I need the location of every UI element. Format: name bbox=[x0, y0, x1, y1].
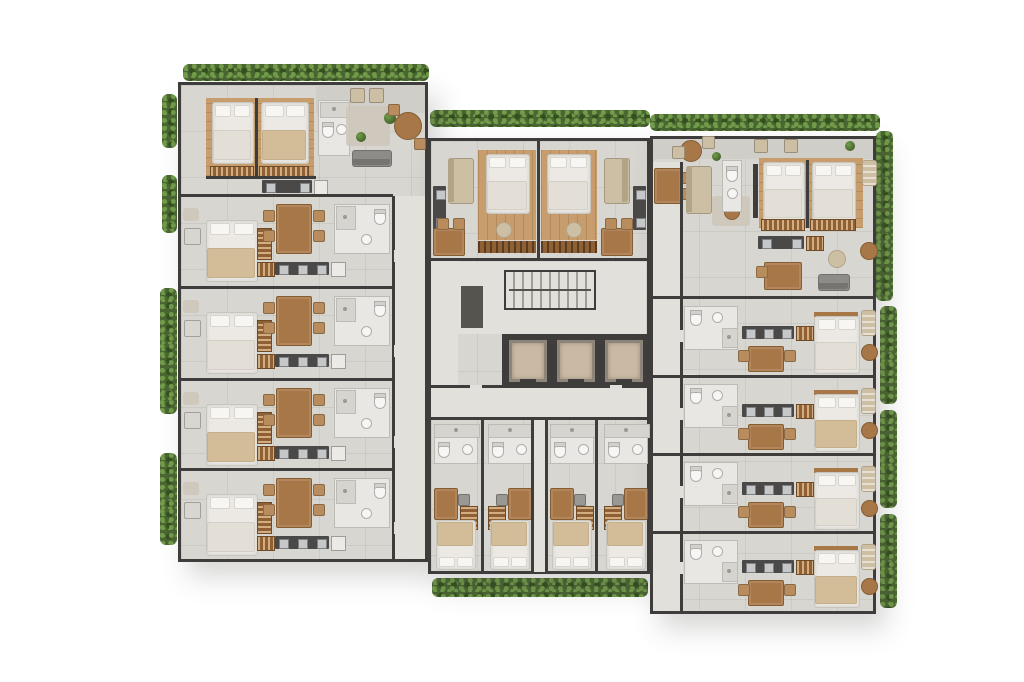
door-opening bbox=[394, 522, 397, 534]
apartment-d-sofa bbox=[686, 166, 712, 214]
studio-e4-kitchen-counter bbox=[742, 560, 794, 573]
micro-c1-shower-drain bbox=[454, 428, 458, 432]
studio-a1-bed-blanket bbox=[207, 248, 255, 278]
studio-e1-sink bbox=[712, 312, 723, 323]
studio-a3-shower-drain bbox=[343, 399, 347, 403]
studio-a2-chair-4 bbox=[313, 322, 325, 334]
apartment-a-bed-2 bbox=[261, 102, 309, 164]
studio-e2-kitchen-counter-appliance-2 bbox=[782, 407, 792, 417]
door-opening bbox=[394, 345, 397, 357]
apartment-d-coffee-table bbox=[724, 204, 740, 220]
micro-c3-toilet bbox=[554, 446, 566, 458]
studio-a3-bed-blanket bbox=[207, 432, 255, 462]
studio-e1-shower-drain bbox=[727, 335, 731, 339]
studio-a4-fridge bbox=[331, 536, 346, 551]
elevator-cabin-3 bbox=[605, 340, 643, 382]
studio-e3-kitchen-counter-appliance-1 bbox=[764, 485, 774, 495]
studio-a1-kitchen-counter-appliance-2 bbox=[317, 265, 327, 275]
studio-a3-kitchen-rack bbox=[257, 446, 275, 461]
studio-a3-kitchen-counter-appliance-2 bbox=[317, 449, 327, 459]
studio-e1-bed-pillow-2 bbox=[838, 319, 856, 330]
micro-c1-sink bbox=[462, 444, 473, 455]
apartment-a-terrace-chair-1 bbox=[350, 88, 365, 103]
studio-e3-shower bbox=[722, 484, 738, 504]
elevator-cabin-1 bbox=[509, 340, 547, 382]
apartment-d-bench-back bbox=[818, 283, 848, 289]
micro-c3-shower-drain bbox=[570, 428, 574, 432]
micro-c3-desk bbox=[550, 488, 574, 520]
door-opening bbox=[562, 417, 576, 420]
studio-e4-kitchen-counter-appliance-1 bbox=[764, 563, 774, 573]
studio-a1-chair-1 bbox=[263, 210, 275, 222]
studio-a4-kitchen-rack bbox=[257, 536, 275, 551]
studio-a1-kitchen-rack bbox=[257, 262, 275, 277]
studio-e4-bed-pillow-1 bbox=[818, 553, 836, 564]
micro-c4-shower bbox=[604, 424, 650, 438]
hedge-right-a bbox=[876, 131, 893, 301]
apartment-a-kitchen-counter bbox=[262, 180, 312, 193]
micro-c1-desk bbox=[434, 488, 458, 520]
apartment-d-closet-2 bbox=[810, 219, 856, 231]
studio-a2-kitchen-counter-appliance-0 bbox=[279, 357, 289, 367]
hedge-right-d bbox=[880, 514, 897, 608]
hedge-left-b bbox=[162, 175, 177, 233]
door-opening bbox=[684, 530, 696, 533]
apartment-d-terrace-chair-4 bbox=[784, 139, 798, 153]
apartment-d-balcony-table bbox=[860, 242, 878, 260]
unit-b1-table bbox=[433, 228, 465, 256]
studio-a1-chair-3 bbox=[313, 210, 325, 222]
elevator-door-2 bbox=[568, 379, 584, 384]
studio-a3-bathroom bbox=[334, 388, 390, 438]
unit-b2-stool bbox=[566, 222, 582, 238]
studio-a3-shower bbox=[336, 390, 356, 414]
unit-b2-bed-pillow-2 bbox=[570, 157, 587, 168]
micro-c2-bed bbox=[490, 520, 530, 570]
studio-a4-chair-2 bbox=[263, 504, 275, 516]
apartment-a-shower bbox=[320, 102, 350, 118]
unit-b2-chair-2 bbox=[621, 218, 633, 230]
studio-e3-headboard bbox=[814, 468, 858, 473]
studio-a2-bed bbox=[206, 312, 258, 374]
micro-c1-bed-pillow-2 bbox=[457, 557, 473, 567]
studio-a1-toilet bbox=[374, 213, 386, 225]
apartment-a-bed-2-blanket bbox=[262, 130, 306, 160]
hedge-right-c bbox=[880, 410, 897, 508]
studio-a3-chair-3 bbox=[313, 394, 325, 406]
hedge-left-d bbox=[160, 453, 177, 545]
wall-micro-3 bbox=[545, 420, 548, 572]
studio-a4-shower-drain bbox=[343, 489, 347, 493]
micro-c3-bed-blanket bbox=[553, 522, 589, 546]
micro-c2-bathroom bbox=[488, 424, 532, 464]
studio-a4-chair-3 bbox=[313, 484, 325, 496]
studio-a3-closet bbox=[257, 412, 272, 444]
studio-e1-chair-2 bbox=[784, 350, 796, 362]
apartment-d-terrace-table bbox=[680, 140, 702, 162]
micro-c1-wardrobe bbox=[460, 506, 478, 530]
unit-b1-bed-pillow-2 bbox=[509, 157, 526, 168]
micro-c2-shower-drain bbox=[508, 428, 512, 432]
studio-a2-bathroom bbox=[334, 296, 390, 346]
studio-e1-bed-blanket bbox=[815, 342, 857, 370]
studio-e4-kitchen-counter-appliance-0 bbox=[746, 563, 756, 573]
micro-c1-bathroom bbox=[434, 424, 478, 464]
studio-e4-chair-1 bbox=[738, 584, 750, 596]
door-opening bbox=[378, 378, 390, 381]
studio-e4-toilet-tank bbox=[690, 544, 702, 550]
apartment-d-bed-2-blanket bbox=[813, 189, 853, 218]
micro-c1-desk-chair bbox=[458, 494, 470, 506]
apartment-d-plant bbox=[712, 152, 721, 161]
apartment-d-balcony-lounge bbox=[862, 160, 877, 186]
micro-c4-wardrobe bbox=[604, 506, 622, 530]
studio-a4-bed bbox=[206, 494, 258, 556]
studio-e4-bed bbox=[814, 550, 860, 608]
hedge-left-a bbox=[162, 94, 177, 148]
apartment-a-shower-drain bbox=[332, 107, 336, 111]
elevator-door-3 bbox=[616, 379, 632, 384]
studio-a4-kitchen-counter bbox=[275, 536, 329, 549]
studio-a4-balcony-pad bbox=[183, 482, 199, 495]
studio-a3-chair-2 bbox=[263, 414, 275, 426]
stairwell bbox=[504, 270, 596, 310]
hedge-right-b bbox=[880, 306, 897, 404]
studio-a3-kitchen-counter-appliance-1 bbox=[298, 449, 308, 459]
studio-a3-toilet-tank bbox=[374, 393, 386, 399]
apartment-d-bed-2-pillow-2 bbox=[835, 165, 852, 176]
apartment-d-terrace-chair-3 bbox=[754, 139, 768, 153]
unit-b1-kitchen-counter bbox=[433, 186, 446, 230]
studio-e2-balcony-table bbox=[861, 422, 878, 439]
unit-b1-bed bbox=[486, 154, 530, 214]
unit-b1-sofa-back bbox=[448, 158, 454, 202]
door-opening bbox=[684, 374, 696, 377]
studio-a2-chair-2 bbox=[263, 322, 275, 334]
apartment-d-bed-1-pillow-1 bbox=[766, 165, 782, 176]
studio-e3-shower-drain bbox=[727, 491, 731, 495]
studio-a1-bathroom bbox=[334, 204, 390, 254]
studio-a1-closet bbox=[257, 228, 272, 260]
micro-c4-toilet bbox=[608, 446, 620, 458]
studio-e1-table bbox=[748, 346, 784, 372]
door-opening bbox=[394, 250, 397, 262]
apartment-d-bed-1-blanket bbox=[764, 189, 802, 218]
apartment-a-bedroom-floor bbox=[206, 98, 314, 176]
studio-e4-shower-drain bbox=[727, 569, 731, 573]
studio-a1-fridge bbox=[331, 262, 346, 277]
apartment-d-bed-1-pillow-2 bbox=[785, 165, 801, 176]
wall-apt-d-divider bbox=[806, 160, 809, 228]
wall-apt-a-divider bbox=[255, 98, 258, 176]
studio-a4-toilet bbox=[374, 487, 386, 499]
studio-a3-bed bbox=[206, 404, 258, 466]
apartment-d-dining-table bbox=[654, 168, 682, 204]
wall-apt-d-tv bbox=[753, 164, 758, 218]
studio-a4-chair-4 bbox=[313, 504, 325, 516]
studio-e1-kitchen-counter-appliance-1 bbox=[764, 329, 774, 339]
studio-a2-fridge bbox=[331, 354, 346, 369]
studio-a2-bed-blanket bbox=[207, 340, 255, 370]
apartment-d-kitchen-counter bbox=[758, 236, 804, 249]
right-wing-roof-terrace bbox=[653, 139, 873, 159]
door-opening bbox=[680, 486, 683, 498]
studio-e2-bed-blanket bbox=[815, 420, 857, 448]
studio-e4-bed-pillow-2 bbox=[838, 553, 856, 564]
studio-a4-bed-blanket bbox=[207, 522, 255, 552]
studio-a1-balcony-pad bbox=[183, 208, 199, 221]
door-opening bbox=[616, 417, 630, 420]
left-wing-corridor bbox=[394, 196, 425, 559]
apartment-a-plant-1 bbox=[384, 112, 396, 124]
studio-e3-bed-pillow-1 bbox=[818, 475, 836, 486]
studio-a4-kitchen-counter-appliance-1 bbox=[298, 539, 308, 549]
floor-plan-scene bbox=[0, 0, 1024, 682]
micro-c4-shower-drain bbox=[624, 428, 628, 432]
apartment-a-dining-chair-1 bbox=[388, 104, 400, 116]
studio-a1-sink bbox=[361, 234, 372, 245]
apartment-a-sofa bbox=[352, 150, 392, 167]
unit-b1-bed-blanket bbox=[487, 181, 527, 210]
apartment-a-bed-2-pillow-1 bbox=[265, 105, 284, 117]
micro-c2-toilet-tank bbox=[492, 442, 504, 448]
studio-e3-chair-2 bbox=[784, 506, 796, 518]
studio-a1-shower bbox=[336, 206, 356, 230]
studio-e1-bathroom bbox=[684, 306, 738, 350]
apartment-d-bed-2-pillow-1 bbox=[815, 165, 832, 176]
studio-a2-balcony-chair bbox=[184, 320, 201, 337]
left-wing-roof-terrace bbox=[316, 85, 425, 113]
unit-b1-chair-1 bbox=[437, 218, 449, 230]
studio-e2-kitchen-rack bbox=[796, 404, 814, 419]
studio-e3-kitchen-counter-appliance-2 bbox=[782, 485, 792, 495]
studio-e4-kitchen-rack bbox=[796, 560, 814, 575]
apartment-d-chair bbox=[756, 266, 768, 278]
studio-a2-chair-3 bbox=[313, 302, 325, 314]
studio-e2-toilet bbox=[690, 392, 702, 404]
studio-a3-chair-4 bbox=[313, 414, 325, 426]
hedge-top-right bbox=[650, 114, 880, 131]
studio-a2-bed-pillow-2 bbox=[234, 315, 254, 327]
studio-a4-balcony-chair bbox=[184, 502, 201, 519]
studio-e1-bed bbox=[814, 316, 860, 374]
micro-c1-bed bbox=[436, 520, 476, 570]
apartment-d-dining-chair-2 bbox=[682, 188, 694, 200]
studio-e4-shower bbox=[722, 562, 738, 582]
unit-b1-stool bbox=[496, 222, 512, 238]
studio-e3-balcony-table bbox=[861, 500, 878, 517]
studio-a2-balcony-pad bbox=[183, 300, 199, 313]
studio-e2-shower-drain bbox=[727, 413, 731, 417]
unit-b2-kitchen-counter-appliance-1 bbox=[636, 218, 646, 228]
micro-c3-bed bbox=[552, 520, 592, 570]
studio-a2-toilet bbox=[374, 305, 386, 317]
apartment-d-kitchen-rack bbox=[806, 236, 824, 251]
studio-e3-bed-pillow-2 bbox=[838, 475, 856, 486]
apartment-a-terrace-chair-2 bbox=[369, 88, 384, 103]
studio-a2-chair-1 bbox=[263, 302, 275, 314]
studio-a2-kitchen-counter bbox=[275, 354, 329, 367]
apartment-a-sink bbox=[336, 124, 347, 135]
studio-a3-dining-table bbox=[276, 388, 312, 438]
door-opening bbox=[378, 468, 390, 471]
center-slab bbox=[428, 138, 650, 574]
studio-e1-kitchen-counter-appliance-0 bbox=[746, 329, 756, 339]
studio-e3-bed-blanket bbox=[815, 498, 857, 526]
studio-e4-table bbox=[748, 580, 784, 606]
studio-e1-kitchen-rack bbox=[796, 326, 814, 341]
door-opening bbox=[610, 385, 622, 388]
storage-locker-0 bbox=[461, 286, 483, 328]
studio-a2-kitchen-counter-appliance-1 bbox=[298, 357, 308, 367]
studio-e2-bed-pillow-1 bbox=[818, 397, 836, 408]
core-west-corridor bbox=[431, 260, 458, 418]
apartment-a-fridge bbox=[314, 180, 328, 195]
unit-b2-sofa bbox=[604, 158, 630, 204]
unit-b1-bed-pillow-1 bbox=[489, 157, 506, 168]
studio-e1-kitchen-counter bbox=[742, 326, 794, 339]
apartment-a-kitchen-counter-appliance-0 bbox=[266, 183, 276, 193]
studio-e4-bed-blanket bbox=[815, 576, 857, 604]
door-opening bbox=[446, 417, 460, 420]
micro-c3-toilet-tank bbox=[554, 442, 566, 448]
stair-hall bbox=[458, 262, 646, 334]
studio-e4-toilet bbox=[690, 548, 702, 560]
studio-e1-balcony-table bbox=[861, 344, 878, 361]
micro-c3-sink bbox=[578, 444, 589, 455]
apartment-a-toilet-tank bbox=[322, 122, 334, 128]
door-opening bbox=[378, 286, 390, 289]
studio-e1-headboard bbox=[814, 312, 858, 317]
apartment-a-dining-table bbox=[394, 112, 422, 140]
micro-c3-desk-chair bbox=[574, 494, 586, 506]
micro-c2-wardrobe bbox=[488, 506, 506, 530]
apartment-d-terrace-plant bbox=[845, 141, 855, 151]
micro-c4-desk bbox=[624, 488, 648, 520]
studio-e3-table bbox=[748, 502, 784, 528]
studio-a4-sink bbox=[361, 508, 372, 519]
apartment-a-bed-2-pillow-2 bbox=[286, 105, 305, 117]
studio-a1-bed-pillow-1 bbox=[210, 223, 230, 235]
studio-a4-kitchen-counter-appliance-0 bbox=[279, 539, 289, 549]
micro-c3-shower bbox=[550, 424, 596, 438]
micro-c3-wardrobe bbox=[576, 506, 594, 530]
studio-a4-bed-pillow-1 bbox=[210, 497, 230, 509]
studio-e3-bathroom bbox=[684, 462, 738, 506]
studio-a3-bed-pillow-1 bbox=[210, 407, 230, 419]
micro-c4-sink bbox=[632, 444, 643, 455]
apartment-a-closet-2 bbox=[259, 166, 309, 178]
studio-e1-bed-pillow-1 bbox=[818, 319, 836, 330]
right-wing-slab bbox=[650, 136, 876, 614]
wall-left-row-4 bbox=[181, 468, 393, 471]
studio-a1-balcony-chair bbox=[184, 228, 201, 245]
studio-a2-kitchen-rack bbox=[257, 354, 275, 369]
studio-a1-dining-table bbox=[276, 204, 312, 254]
studio-e1-chair-1 bbox=[738, 350, 750, 362]
studio-e3-chair-1 bbox=[738, 506, 750, 518]
micro-c4-desk-chair bbox=[612, 494, 624, 506]
apartment-a-toilet bbox=[322, 126, 334, 138]
studio-a3-kitchen-counter-appliance-0 bbox=[279, 449, 289, 459]
micro-c4-bed bbox=[606, 520, 646, 570]
apartment-d-bench bbox=[818, 274, 850, 291]
unit-b2-bed-pillow-1 bbox=[550, 157, 567, 168]
apartment-a-rug bbox=[346, 106, 390, 146]
apartment-d-closet-1 bbox=[761, 219, 805, 231]
micro-c2-toilet bbox=[492, 446, 504, 458]
studio-e1-toilet-tank bbox=[690, 310, 702, 316]
wall-main-corridor-s bbox=[431, 417, 647, 420]
studio-a4-kitchen-counter-appliance-2 bbox=[317, 539, 327, 549]
unit-b2-bed-blanket bbox=[548, 181, 588, 210]
studio-a2-bed-pillow-1 bbox=[210, 315, 230, 327]
micro-c1-shower bbox=[434, 424, 480, 438]
micro-c3-bed-pillow-2 bbox=[573, 557, 589, 567]
studio-e2-chair-2 bbox=[784, 428, 796, 440]
studio-e2-chair-1 bbox=[738, 428, 750, 440]
studio-e4-headboard bbox=[814, 546, 858, 551]
apartment-d-terrace-chair-2 bbox=[702, 136, 715, 149]
studio-a1-kitchen-counter-appliance-1 bbox=[298, 265, 308, 275]
apartment-d-stool bbox=[828, 250, 846, 268]
micro-c2-shower bbox=[488, 424, 534, 438]
studio-a2-sink bbox=[361, 326, 372, 337]
wall-micro-4 bbox=[595, 420, 598, 572]
wall-main-corridor-n bbox=[431, 385, 647, 388]
unit-b2-kitchen-counter bbox=[633, 186, 646, 230]
wall-right-row-4 bbox=[653, 531, 875, 534]
door-opening bbox=[680, 330, 683, 342]
studio-a4-dining-table bbox=[276, 478, 312, 528]
unit-b2-bedroom-floor bbox=[541, 150, 597, 240]
wall-right-row-3 bbox=[653, 453, 875, 456]
door-opening bbox=[684, 296, 696, 299]
micro-c2-desk bbox=[508, 488, 532, 520]
hedge-left-c bbox=[160, 288, 177, 414]
apartment-a-bed-1 bbox=[212, 102, 254, 164]
apartment-d-dining-chair-1 bbox=[682, 172, 694, 184]
door-opening bbox=[500, 417, 514, 420]
apartment-a-bed-1-pillow-1 bbox=[215, 105, 231, 117]
studio-e3-kitchen-rack bbox=[796, 482, 814, 497]
micro-c3-bed-pillow-1 bbox=[555, 557, 571, 567]
apartment-a-bed-1-pillow-2 bbox=[234, 105, 250, 117]
unit-b1-kitchen-counter-appliance-1 bbox=[436, 218, 446, 228]
studio-a2-dining-table bbox=[276, 296, 312, 346]
hedge-top-left bbox=[183, 64, 429, 81]
micro-c4-bed-blanket bbox=[607, 522, 643, 546]
micro-c4-bathroom bbox=[604, 424, 648, 464]
micro-corridor bbox=[534, 420, 546, 572]
elevator-shaft bbox=[502, 334, 648, 388]
wall-apt-a-bedrooms bbox=[206, 176, 316, 179]
wall-left-row-1 bbox=[181, 194, 393, 197]
micro-c1-toilet-tank bbox=[438, 442, 450, 448]
wall-left-row-3 bbox=[181, 378, 393, 381]
door-opening bbox=[394, 436, 397, 448]
studio-a1-chair-2 bbox=[263, 230, 275, 242]
studio-a1-chair-4 bbox=[313, 230, 325, 242]
micro-c1-bed-blanket bbox=[437, 522, 473, 546]
apartment-a-dining-chair-2 bbox=[414, 138, 426, 150]
elevator-door-1 bbox=[520, 379, 536, 384]
unit-b2-bed bbox=[547, 154, 591, 214]
apartment-d-table bbox=[764, 262, 802, 290]
apartment-a-bed-1-blanket bbox=[213, 130, 251, 160]
micro-c2-bed-blanket bbox=[491, 522, 527, 546]
studio-a3-kitchen-counter bbox=[275, 446, 329, 459]
